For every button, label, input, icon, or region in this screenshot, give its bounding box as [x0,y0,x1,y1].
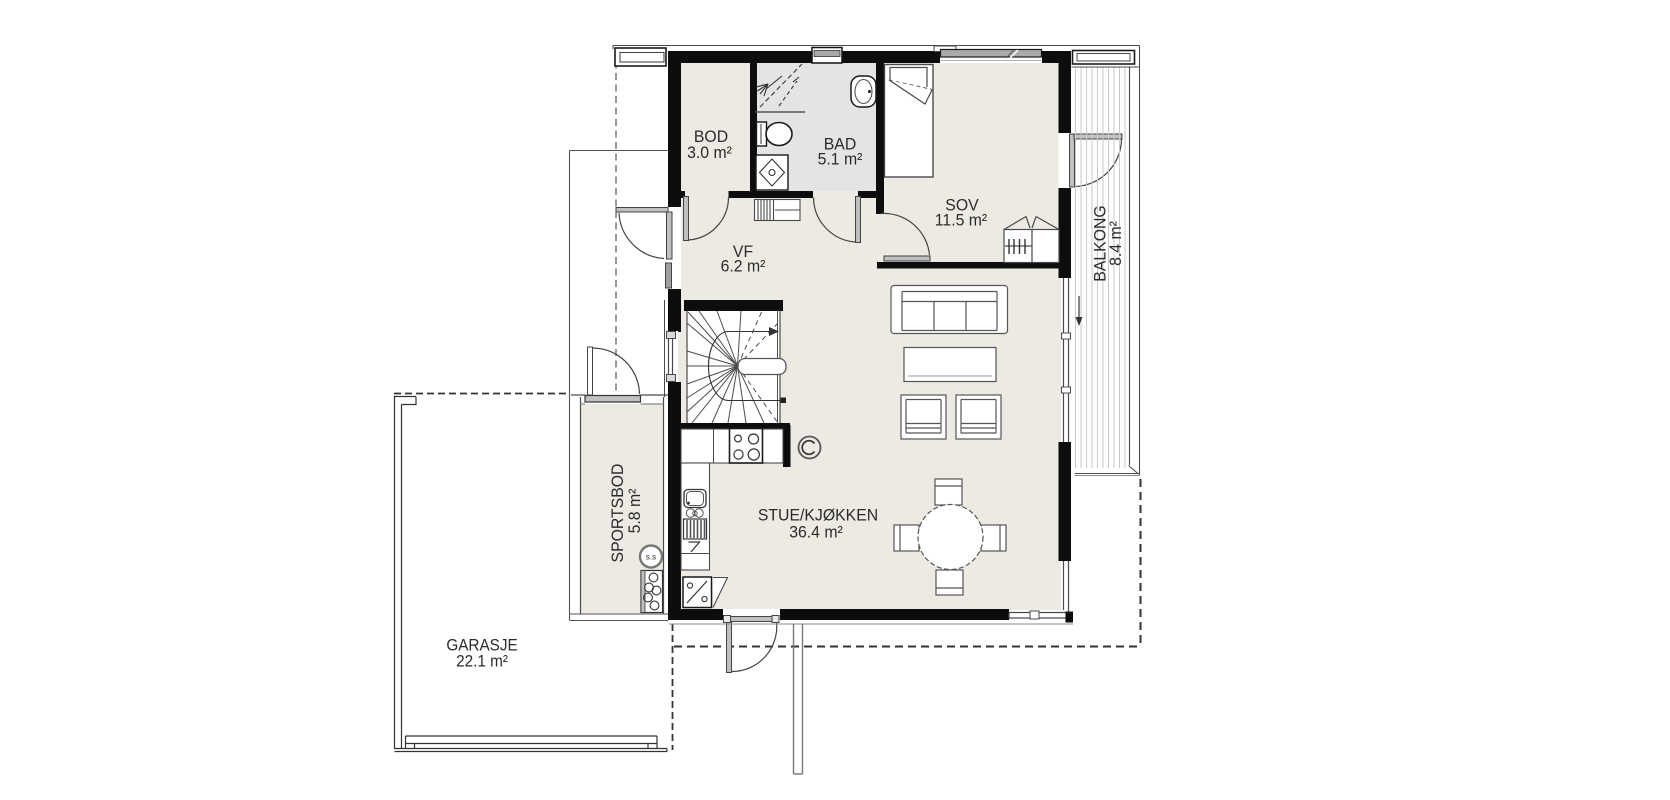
svg-text:36.4 m²: 36.4 m² [789,523,843,542]
svg-text:8.4 m²: 8.4 m² [1107,221,1126,266]
svg-text:6.2 m²: 6.2 m² [721,257,766,276]
svg-text:5.1 m²: 5.1 m² [818,150,863,169]
svg-text:3.0 m²: 3.0 m² [687,144,732,163]
svg-text:STUE/KJØKKEN: STUE/KJØKKEN [758,506,878,525]
svg-text:SPORTSBOD: SPORTSBOD [609,463,628,562]
svg-text:11.5 m²: 11.5 m² [935,211,988,230]
svg-text:5.8 m²: 5.8 m² [626,488,645,533]
svg-text:22.1 m²: 22.1 m² [456,652,508,671]
svg-text:s.s: s.s [646,553,656,562]
